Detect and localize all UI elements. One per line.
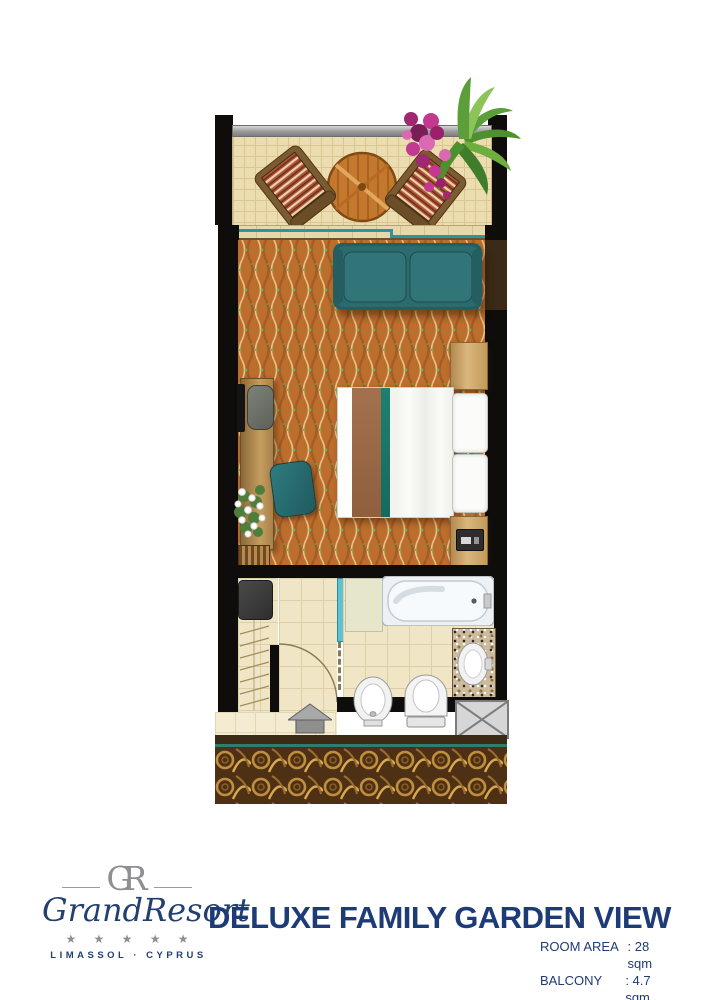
tv	[237, 384, 245, 432]
logo-line-left	[62, 887, 100, 888]
hotel-logo: GR GrandResort ★ ★ ★ ★ ★ LIMASSOL · CYPR…	[42, 858, 212, 961]
page: GR GrandResort ★ ★ ★ ★ ★ LIMASSOL · CYPR…	[0, 0, 707, 1000]
bidet	[352, 676, 394, 727]
balcony-wall-left	[215, 115, 233, 225]
room-title: DELUXE FAMILY GARDEN VIEW	[208, 900, 676, 936]
telephone	[456, 529, 484, 551]
desk-chair	[247, 385, 274, 430]
sliding-door-left	[232, 229, 392, 232]
spec-balcony: BALCONY : 4.7 sqm	[540, 972, 676, 1000]
balcony-plants	[383, 75, 517, 210]
nightstand-top	[450, 342, 488, 390]
sink	[457, 641, 493, 687]
hotel-stars: ★ ★ ★ ★ ★	[42, 932, 212, 946]
armchair-teal	[268, 459, 317, 518]
corridor-carpet	[215, 747, 507, 804]
bed-sheet	[338, 388, 353, 517]
bougainvillea	[402, 112, 451, 199]
pillow-top	[452, 393, 488, 453]
wardrobe-hangers	[238, 620, 271, 710]
bench	[238, 545, 270, 567]
vanity-counter	[452, 628, 496, 699]
bed-duvet	[390, 388, 453, 517]
bed	[337, 387, 454, 518]
wardrobe-wall	[270, 645, 279, 712]
shower-shelf	[345, 578, 383, 632]
bathtub	[382, 576, 494, 626]
entrance-marker	[288, 703, 332, 735]
hotel-location: LIMASSOL · CYPRUS	[42, 950, 212, 961]
room-info: DELUXE FAMILY GARDEN VIEW ROOM AREA : 28…	[208, 900, 676, 936]
bedroom-wall-left	[218, 225, 239, 712]
spec-balcony-value: : 4.7 sqm	[625, 972, 676, 1000]
palm-fronds	[437, 77, 521, 195]
spec-room-area: ROOM AREA : 28 sqm	[540, 938, 676, 972]
room-specs: ROOM AREA : 28 sqm BALCONY : 4.7 sqm	[540, 938, 676, 1000]
door-swing-arc	[279, 640, 340, 704]
logo-line-right	[154, 887, 192, 888]
bed-runner	[352, 388, 381, 517]
nightstand-bottom	[450, 516, 488, 567]
spec-room-area-value: : 28 sqm	[628, 938, 676, 972]
floor-plan	[215, 112, 507, 804]
logo-monogram: GR	[106, 862, 147, 895]
flower-vase	[228, 478, 272, 540]
toilet	[404, 674, 448, 728]
hotel-name: GrandResort	[42, 894, 212, 928]
spec-balcony-label: BALCONY	[540, 972, 625, 1000]
bed-runner-teal	[381, 388, 390, 517]
spec-room-area-label: ROOM AREA	[540, 938, 628, 972]
luggage-rack	[238, 580, 273, 620]
pillow-bottom	[452, 454, 488, 513]
sofa	[333, 243, 482, 310]
service-shaft	[455, 700, 509, 739]
wall-wood-accent	[485, 240, 507, 310]
